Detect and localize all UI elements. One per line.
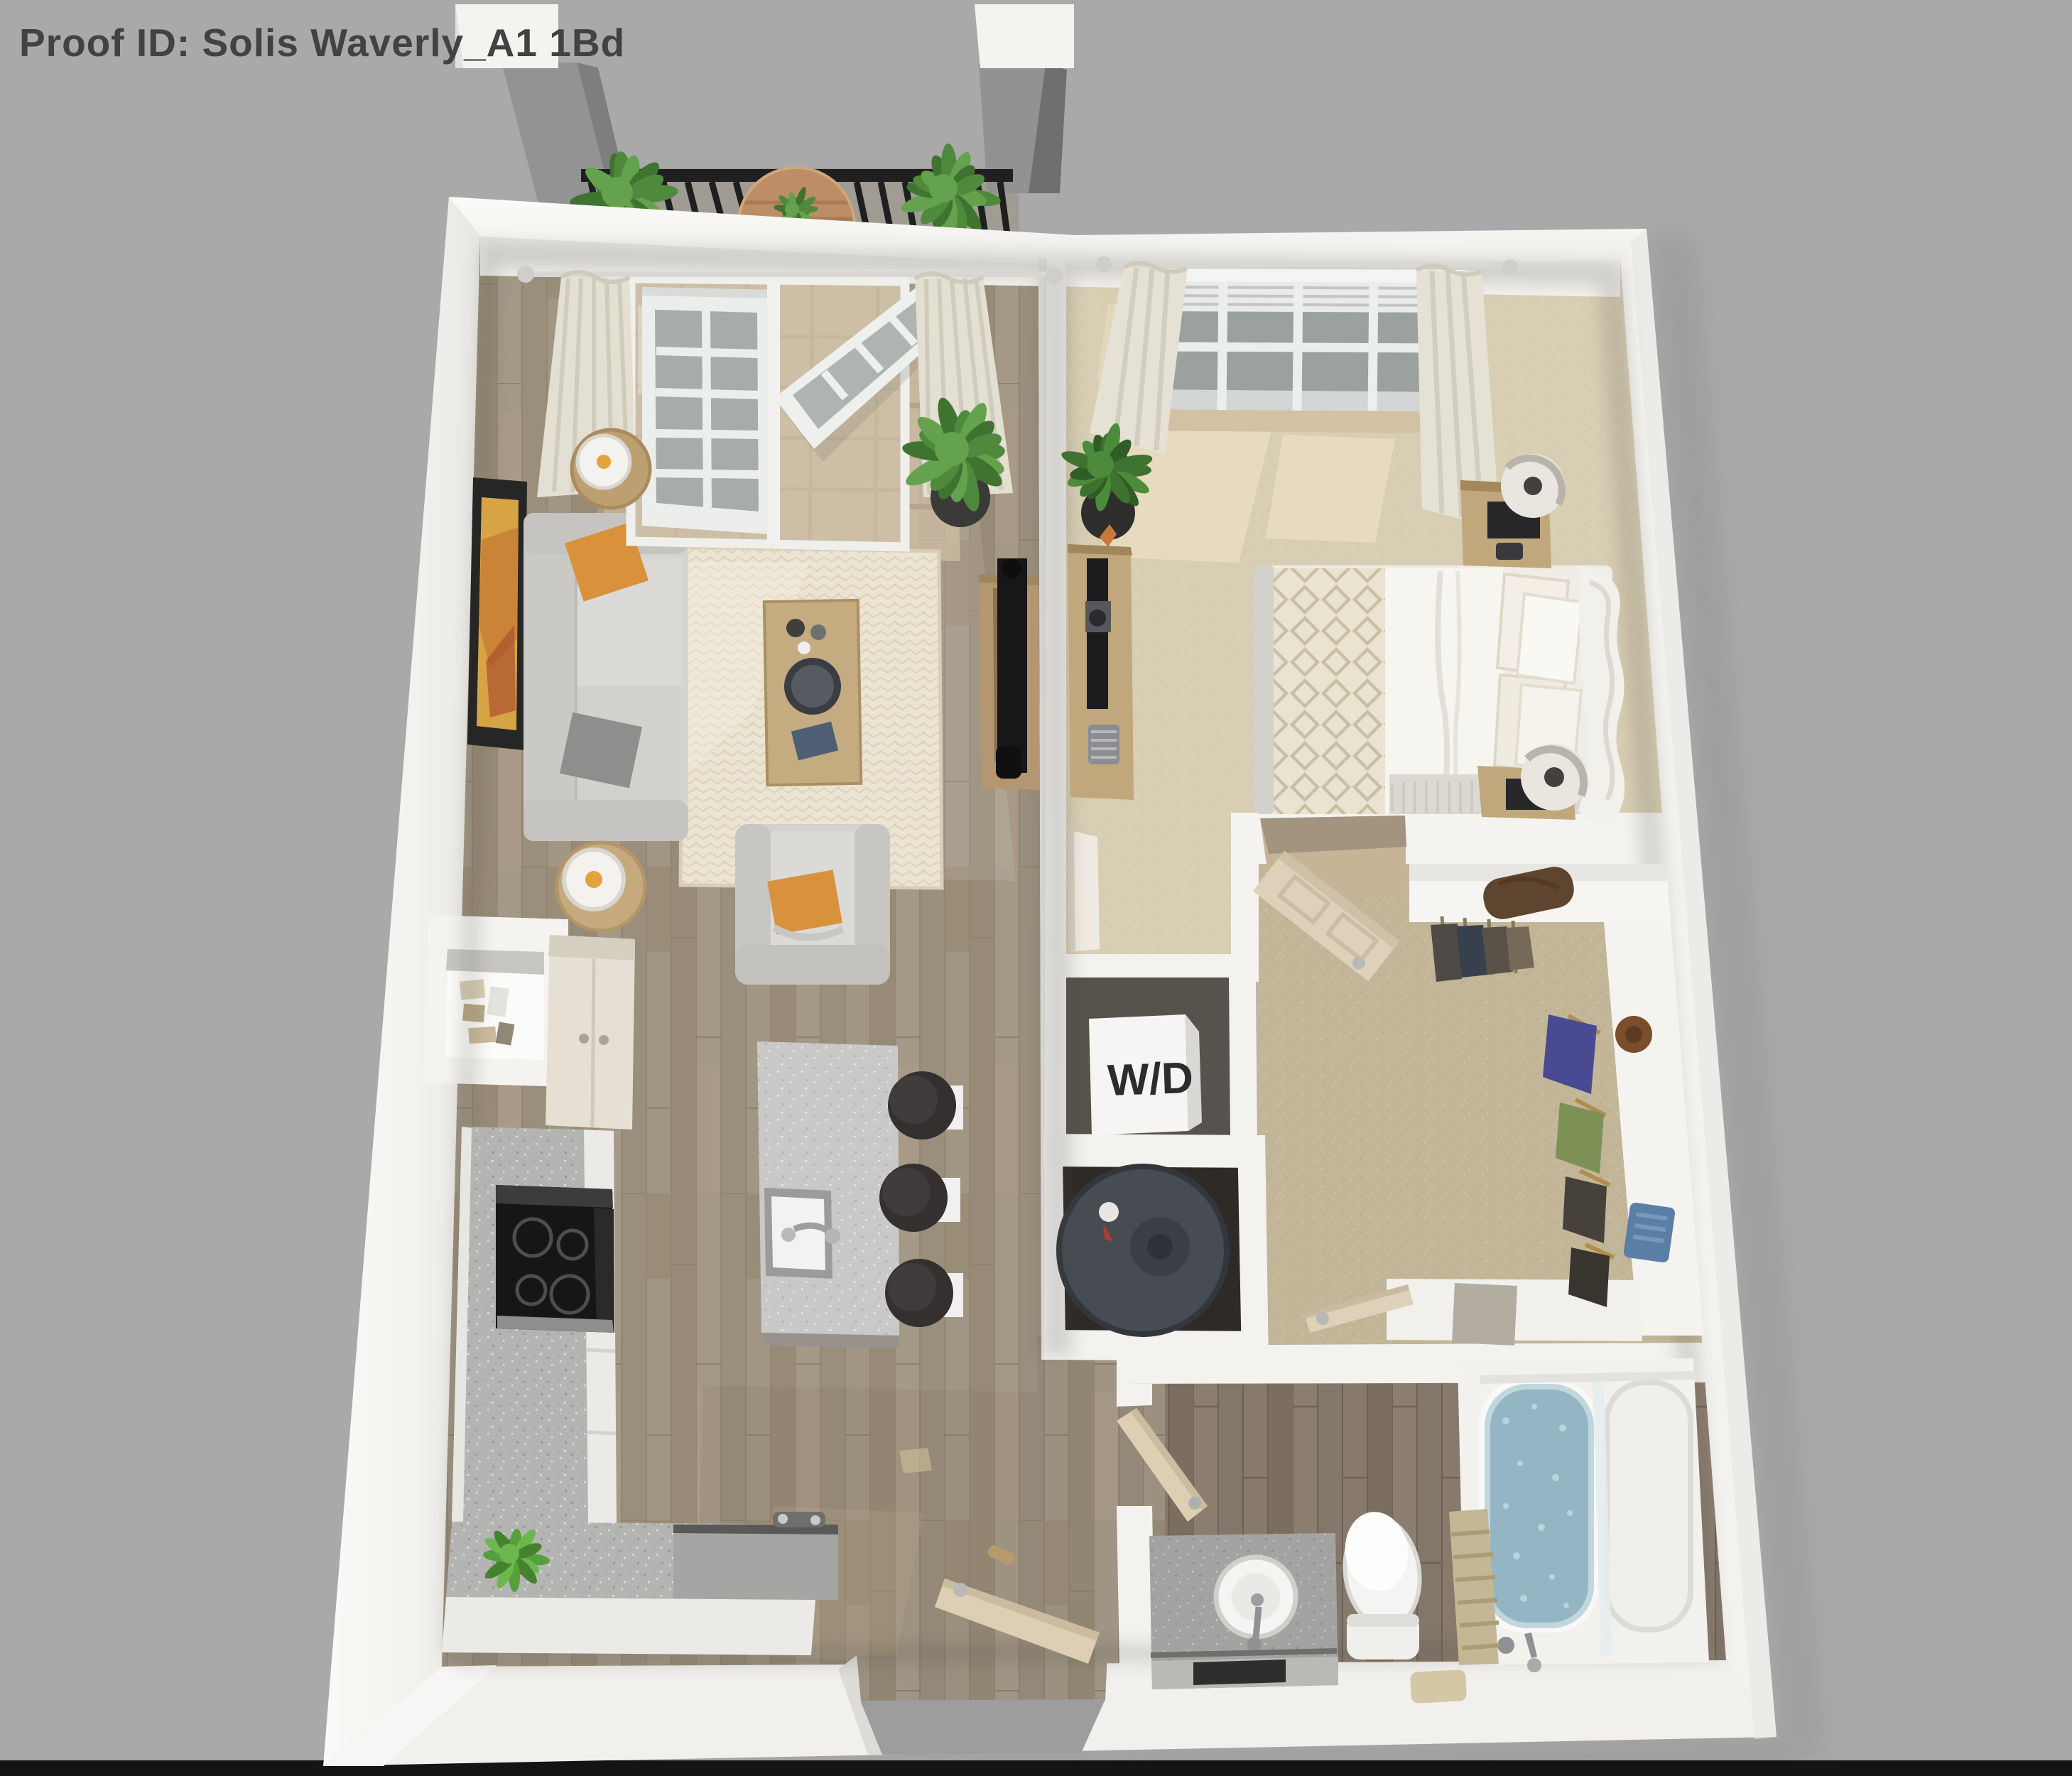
svg-text:W/D: W/D [1107, 1054, 1194, 1105]
svg-text:Proof ID: Solis Waverly_A1 1Bd: Proof ID: Solis Waverly_A1 1Bd [19, 21, 625, 65]
